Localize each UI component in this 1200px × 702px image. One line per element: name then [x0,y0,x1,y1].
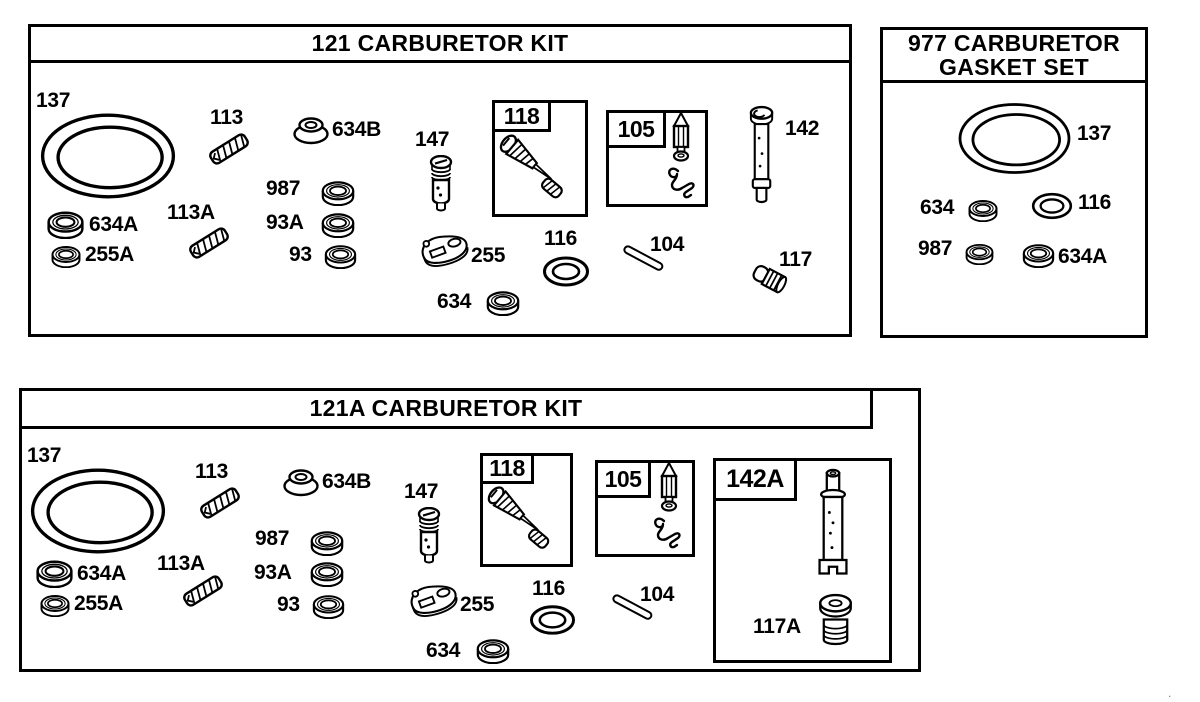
spring-icon [186,224,232,262]
part-label-987: 987 [266,178,300,200]
o-ring-icon [1030,192,1074,220]
washer-icon [321,211,355,238]
washer-icon [324,243,357,269]
corner-mark: . [1168,686,1171,700]
part-label-117A: 117A [753,616,801,638]
needle-valve-icon [415,507,443,565]
part-label-137: 137 [36,90,70,112]
pump-gasket-icon [406,581,461,619]
pump-gasket-icon [417,231,472,269]
parts-layer: 118105137113634B14798793A93634A255A113A2… [0,0,1200,702]
needle-jet-assembly-icon [497,133,583,211]
part-label-255: 255 [460,594,494,616]
needle-clip-icon [650,515,684,551]
needle-valve-icon [427,155,455,213]
inset-box-label: 105 [606,110,666,148]
o-ring-icon [529,604,576,636]
part-label-634: 634 [437,291,471,313]
welch-plug-icon [817,593,854,646]
washer-icon [486,289,520,316]
spring-icon [180,572,226,610]
o-ring-icon [955,101,1074,176]
carburetor-parts-diagram: 121 CARBURETOR KIT 977 CARBURETOR GASKET… [0,0,1200,702]
washer-icon [965,242,994,265]
part-label-634B: 634B [332,119,381,141]
float-needle-icon [669,112,693,164]
washer-icon [35,558,74,588]
part-label-93: 93 [277,594,300,616]
washer-icon [310,560,344,587]
washer-icon [312,593,345,619]
inset-box-label: 142A [713,458,797,501]
part-label-147: 147 [415,129,449,151]
o-ring-icon [36,111,180,201]
inset-box-label: 105 [595,460,651,498]
washer-icon [46,209,85,239]
washer-icon [476,637,510,664]
part-label-113: 113 [210,107,243,129]
part-label-113A: 113A [167,202,215,224]
float-needle-icon [657,462,681,514]
part-label-255A: 255A [74,593,123,615]
part-label-634A: 634A [89,214,138,236]
washer-icon [310,529,344,556]
pin-icon [621,244,669,276]
part-label-93A: 93A [266,212,304,234]
pin-icon [610,593,658,625]
part-label-634: 634 [426,640,460,662]
jet-tube-icon [812,468,854,590]
inset-box-label: 118 [492,100,551,132]
part-label-93: 93 [289,244,312,266]
part-label-634B: 634B [322,471,371,493]
part-label-137: 137 [27,445,61,467]
part-label-634A: 634A [77,563,126,585]
part-label-142: 142 [785,118,819,140]
inset-box-label: 118 [480,453,534,484]
part-label-987: 987 [255,528,289,550]
inset-box-142A: 142A [713,458,892,663]
part-label-113: 113 [195,461,228,483]
part-label-634A: 634A [1058,246,1107,268]
part-label-255A: 255A [85,244,134,266]
part-label-634: 634 [920,197,954,219]
part-label-116: 116 [532,578,565,600]
jet-tube-icon [747,104,778,207]
part-label-137: 137 [1077,123,1111,145]
welch-plug-icon [748,263,790,299]
washer-icon [968,198,998,222]
seal-icon [281,465,321,499]
washer-icon [40,593,70,617]
o-ring-icon [27,466,169,556]
spring-icon [197,484,243,522]
part-label-255: 255 [471,245,505,267]
part-label-987: 987 [918,238,952,260]
part-label-147: 147 [404,481,438,503]
part-label-116: 116 [544,228,577,250]
part-label-116: 116 [1078,192,1111,214]
o-ring-icon [542,255,590,288]
washer-icon [51,244,81,268]
part-label-93A: 93A [254,562,292,584]
washer-icon [1022,242,1055,268]
washer-icon [321,179,355,206]
seal-icon [291,113,331,147]
spring-icon [206,130,252,168]
needle-clip-icon [664,165,698,201]
needle-jet-assembly-icon [485,485,569,561]
